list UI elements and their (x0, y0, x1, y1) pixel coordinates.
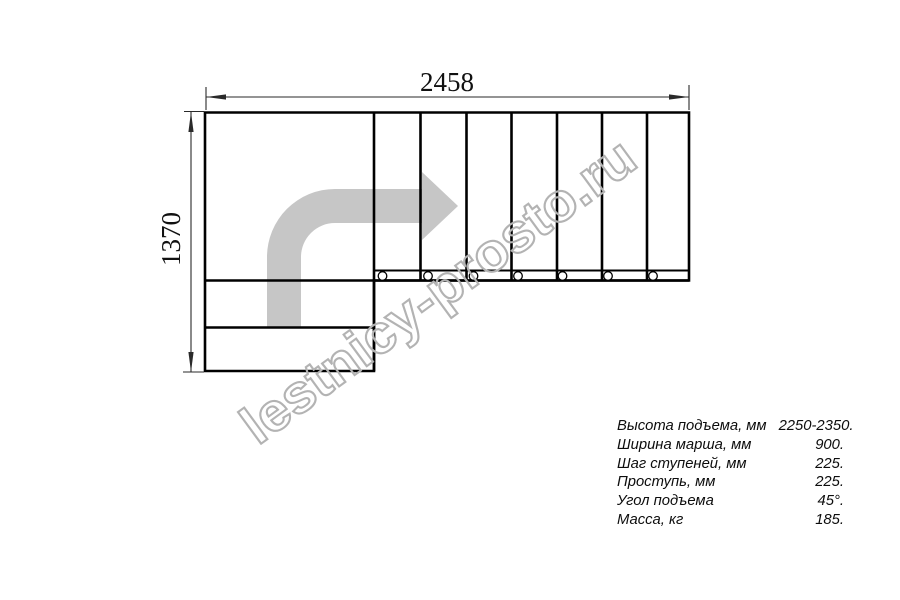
staircase-drawing-page: 2458 1370 lestnicy-prosto.ru Высота подъ… (0, 0, 900, 600)
spec-row: Шаг ступеней, мм 225. (617, 455, 844, 474)
spec-row: Высота подъема, мм 2250-2350. (617, 417, 844, 436)
spec-value: 45°. (818, 492, 845, 511)
baluster-circle (514, 272, 523, 281)
dimension-arrow-right (669, 94, 689, 99)
dimension-arrow-down (188, 352, 193, 372)
spec-label: Проступь, мм (617, 473, 715, 492)
spec-row: Угол подъема 45°. (617, 492, 844, 511)
baluster-circle (378, 272, 387, 281)
spec-value: 225. (815, 473, 844, 492)
spec-value: 900. (815, 436, 844, 455)
spec-row: Проступь, мм 225. (617, 473, 844, 492)
baluster-circle (558, 272, 567, 281)
spec-label: Высота подъема, мм (617, 417, 767, 436)
height-dimension (183, 112, 204, 373)
spec-value: 225. (815, 455, 844, 474)
spec-label: Масса, кг (617, 511, 683, 530)
spec-value: 2250-2350. (779, 417, 854, 436)
spec-label: Ширина марша, мм (617, 436, 751, 455)
spec-table: Высота подъема, мм 2250-2350. Ширина мар… (617, 417, 844, 530)
dimension-arrow-left (206, 94, 226, 99)
spec-value: 185. (815, 511, 844, 530)
dimension-arrow-up (188, 112, 193, 132)
spec-label: Шаг ступеней, мм (617, 455, 747, 474)
spec-row: Ширина марша, мм 900. (617, 436, 844, 455)
width-dimension-label: 2458 (420, 67, 474, 97)
baluster-circle (649, 272, 658, 281)
height-dimension-label: 1370 (156, 212, 186, 266)
spec-label: Угол подъема (617, 492, 714, 511)
baluster-circle (604, 272, 613, 281)
spec-row: Масса, кг 185. (617, 511, 844, 530)
